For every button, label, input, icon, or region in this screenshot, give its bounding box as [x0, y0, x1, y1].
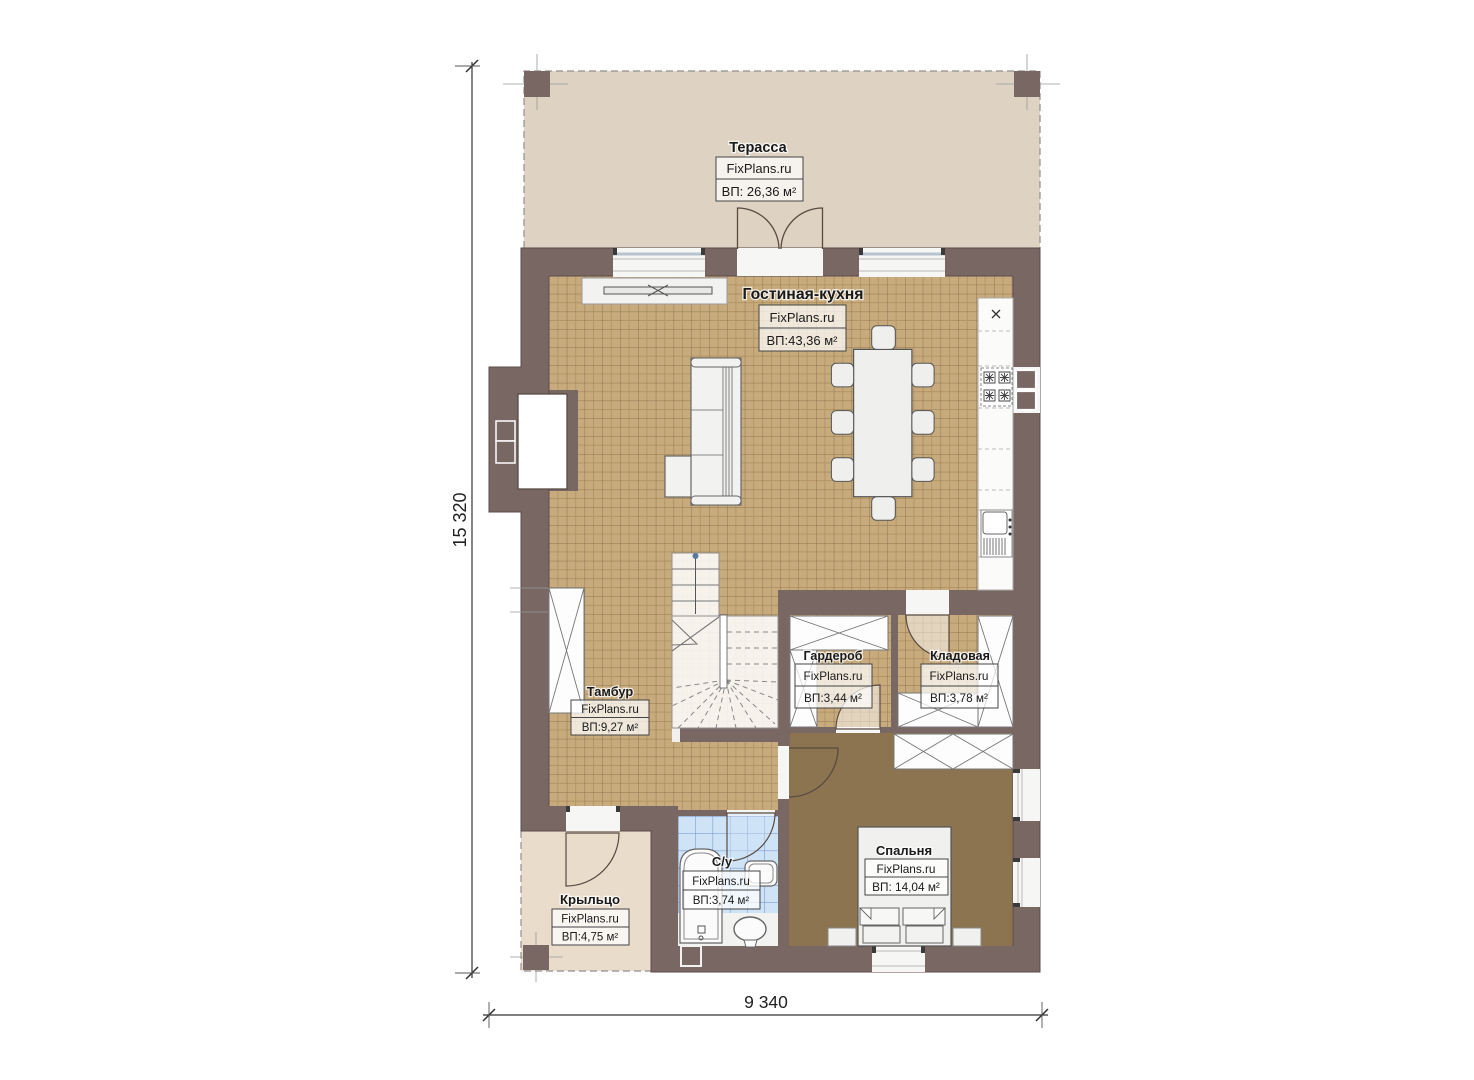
svg-text:ВП:43,36 м²: ВП:43,36 м²: [766, 333, 838, 348]
svg-text:Кладовая: Кладовая: [930, 649, 990, 663]
svg-text:ВП: 26,36 м²: ВП: 26,36 м²: [722, 184, 797, 199]
svg-text:ВП: 14,04 м²: ВП: 14,04 м²: [872, 880, 940, 894]
svg-text:ВП:3,78 м²: ВП:3,78 м²: [930, 691, 988, 705]
svg-text:FixPlans.ru: FixPlans.ru: [769, 310, 834, 325]
svg-text:Гостиная-кухня: Гостиная-кухня: [742, 286, 863, 303]
svg-text:9 340: 9 340: [744, 992, 788, 1012]
svg-text:FixPlans.ru: FixPlans.ru: [876, 862, 935, 876]
svg-text:Гардероб: Гардероб: [803, 649, 862, 663]
svg-text:Спальня: Спальня: [876, 843, 932, 858]
svg-text:Крыльцо: Крыльцо: [560, 892, 620, 907]
svg-text:ВП:4,75 м²: ВП:4,75 м²: [562, 932, 619, 944]
svg-text:FixPlans.ru: FixPlans.ru: [803, 669, 862, 683]
svg-text:FixPlans.ru: FixPlans.ru: [561, 914, 619, 926]
svg-text:ВП:3,74 м²: ВП:3,74 м²: [693, 895, 750, 907]
svg-text:FixPlans.ru: FixPlans.ru: [581, 704, 639, 716]
svg-text:С/у: С/у: [712, 854, 733, 869]
svg-text:Терасса: Терасса: [729, 140, 787, 156]
svg-text:ВП:3,44 м²: ВП:3,44 м²: [804, 691, 862, 705]
svg-text:ВП:9,27 м²: ВП:9,27 м²: [582, 722, 639, 734]
svg-text:FixPlans.ru: FixPlans.ru: [692, 876, 750, 888]
svg-text:FixPlans.ru: FixPlans.ru: [929, 669, 988, 683]
svg-text:15 320: 15 320: [450, 492, 470, 547]
svg-text:FixPlans.ru: FixPlans.ru: [726, 161, 791, 176]
svg-text:Тамбур: Тамбур: [587, 684, 634, 699]
